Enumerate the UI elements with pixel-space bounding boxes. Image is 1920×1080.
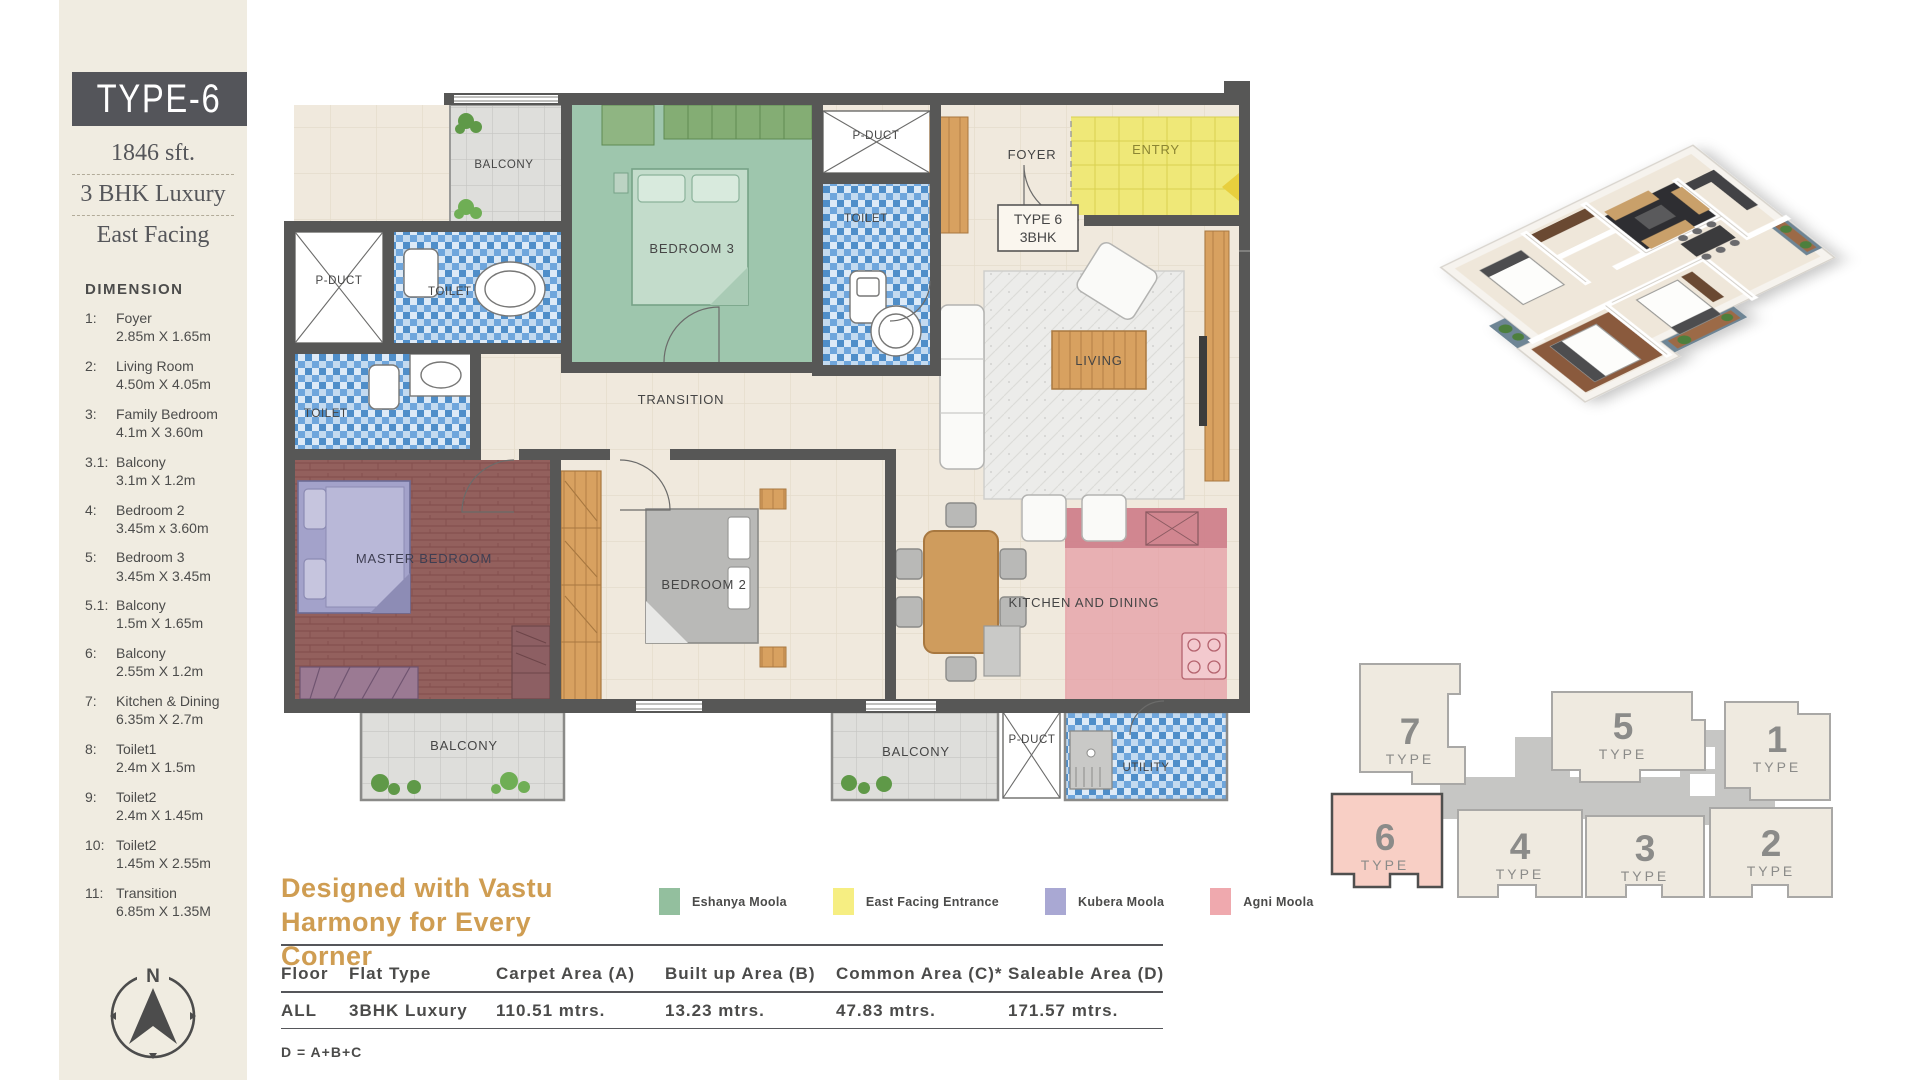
- room-label: BEDROOM 2: [661, 577, 746, 592]
- list-item: 11:Transition6.85m X 1.35M: [85, 884, 243, 920]
- unit-word: TYPE: [1386, 751, 1435, 767]
- cell-builtup-area: 13.23 mtrs.: [665, 993, 836, 1028]
- room-label: FOYER: [1008, 147, 1057, 162]
- room-label: LIVING: [1075, 353, 1122, 368]
- list-item: 7:Kitchen & Dining6.35m X 2.7m: [85, 692, 243, 728]
- room-label: UTILITY: [1122, 762, 1169, 774]
- vastu-section: Designed with Vastu Harmony for Every Co…: [281, 872, 1163, 973]
- room-label: KITCHEN AND DINING: [1009, 595, 1160, 610]
- unit-word: TYPE: [1599, 746, 1648, 762]
- iso-apartment: [1425, 145, 1853, 402]
- cell-carpet-area: 110.51 mtrs.: [496, 993, 665, 1028]
- room-label: BEDROOM 3: [649, 241, 734, 256]
- room-label: P-DUCT: [852, 130, 899, 142]
- unit-word: TYPE: [1361, 857, 1410, 873]
- legend-label: Agni Moola: [1243, 895, 1313, 909]
- unit-number: 1: [1767, 719, 1788, 760]
- legend-label: Eshanya Moola: [692, 895, 787, 909]
- unit-number: 2: [1761, 823, 1782, 864]
- sidebar: TYPE-6 1846 sft. 3 BHK Luxury East Facin…: [59, 0, 247, 1080]
- list-item: 1:Foyer2.85m X 1.65m: [85, 309, 243, 345]
- legend-item: Eshanya Moola: [659, 888, 787, 915]
- vastu-title-line1: Designed with Vastu: [281, 872, 611, 906]
- floor-plan: TYPE 6 3BHK BALCONY BEDROOM 3 P-DUCT TOI…: [284, 81, 1250, 817]
- legend-label: East Facing Entrance: [866, 895, 999, 909]
- list-item: 4:Bedroom 23.45m x 3.60m: [85, 501, 243, 537]
- list-item: 3:Family Bedroom4.1m X 3.60m: [85, 405, 243, 441]
- flat-area: 1846 sft.: [59, 134, 247, 174]
- dimension-heading: DIMENSION: [85, 281, 184, 298]
- legend-item: East Facing Entrance: [833, 888, 999, 915]
- vastu-legend: Eshanya Moola East Facing Entrance Kuber…: [659, 888, 1360, 915]
- list-item: 8:Toilet12.4m X 1.5m: [85, 740, 243, 776]
- north-compass-icon: N: [88, 952, 218, 1070]
- type-banner: TYPE-6: [72, 72, 247, 126]
- plan-tag-line2: 3BHK: [1020, 229, 1057, 245]
- legend-item: Kubera Moola: [1045, 888, 1164, 915]
- table-row: ALL 3BHK Luxury 110.51 mtrs. 13.23 mtrs.…: [281, 993, 1163, 1029]
- list-item: 9:Toilet22.4m X 1.45m: [85, 788, 243, 824]
- column-header: Common Area (C)*: [836, 956, 1008, 991]
- column-header: Flat Type: [349, 956, 496, 991]
- area-table-header: Floor Flat Type Carpet Area (A) Built up…: [281, 956, 1163, 993]
- area-table: Floor Flat Type Carpet Area (A) Built up…: [281, 956, 1163, 1060]
- column-header: Saleable Area (D): [1008, 956, 1163, 991]
- flat-info-block: 1846 sft. 3 BHK Luxury East Facing: [59, 134, 247, 256]
- list-item: 5:Bedroom 33.45m X 3.45m: [85, 548, 243, 584]
- room-label: TOILET: [304, 408, 348, 420]
- unit-word: TYPE: [1747, 863, 1796, 879]
- list-item: 10:Toilet21.45m X 2.55m: [85, 836, 243, 872]
- compass-north-label: N: [146, 966, 160, 987]
- plan-tag-line1: TYPE 6: [1014, 211, 1062, 227]
- cell-saleable-area: 171.57 mtrs.: [1008, 993, 1163, 1028]
- room-label: BALCONY: [474, 159, 533, 171]
- room-label: ENTRY: [1132, 142, 1180, 157]
- room-label: P-DUCT: [315, 275, 362, 287]
- brochure-page: TYPE-6 1846 sft. 3 BHK Luxury East Facin…: [0, 0, 1920, 1080]
- flat-type: 3 BHK Luxury: [59, 175, 247, 215]
- type-title: TYPE-6: [97, 77, 222, 122]
- legend-label: Kubera Moola: [1078, 895, 1164, 909]
- list-item: 6:Balcony2.55m X 1.2m: [85, 644, 243, 680]
- unit-number: 7: [1400, 711, 1421, 752]
- legend-swatch-agni: [1210, 888, 1231, 915]
- flat-facing: East Facing: [59, 216, 247, 256]
- unit-word: TYPE: [1753, 759, 1802, 775]
- dimension-list: 1:Foyer2.85m X 1.65m 2:Living Room4.50m …: [85, 309, 243, 931]
- table-footnote: D = A+B+C: [281, 1044, 1163, 1060]
- cell-floor: ALL: [281, 993, 349, 1028]
- list-item: 2:Living Room4.50m X 4.05m: [85, 357, 243, 393]
- room-label: TOILET: [844, 213, 888, 225]
- plan-tag: TYPE 6 3BHK: [998, 205, 1078, 251]
- room-label: BALCONY: [430, 738, 498, 753]
- unit-number: 5: [1613, 706, 1634, 747]
- column-header: Floor: [281, 956, 349, 991]
- cell-flat-type: 3BHK Luxury: [349, 993, 496, 1028]
- legend-item: Agni Moola: [1210, 888, 1313, 915]
- divider: [281, 944, 1163, 946]
- room-label: MASTER BEDROOM: [356, 551, 492, 566]
- legend-swatch-eshanya: [659, 888, 680, 915]
- unit-number: 4: [1510, 826, 1531, 867]
- room-label: P-DUCT: [1008, 734, 1055, 746]
- legend-swatch-east-entrance: [833, 888, 854, 915]
- column-header: Built up Area (B): [665, 956, 836, 991]
- column-header: Carpet Area (A): [496, 956, 665, 991]
- list-item: 5.1:Balcony1.5m X 1.65m: [85, 596, 243, 632]
- room-label: TOILET: [428, 286, 472, 298]
- room-label: BALCONY: [882, 744, 950, 759]
- unit-number: 6: [1375, 817, 1396, 858]
- unit-word: TYPE: [1621, 868, 1670, 884]
- unit-word: TYPE: [1496, 866, 1545, 882]
- legend-swatch-kubera: [1045, 888, 1066, 915]
- isometric-3d-view: [1380, 60, 1870, 500]
- cell-common-area: 47.83 mtrs.: [836, 993, 1008, 1028]
- list-item: 3.1:Balcony3.1m X 1.2m: [85, 453, 243, 489]
- unit-number: 3: [1635, 828, 1656, 869]
- building-key-plan: 7 TYPE 5 TYPE 1 TYPE 6 TYPE 4 TYPE 3 TYP…: [1330, 652, 1860, 912]
- lower-balconies: [361, 712, 1227, 800]
- room-label: TRANSITION: [638, 392, 725, 407]
